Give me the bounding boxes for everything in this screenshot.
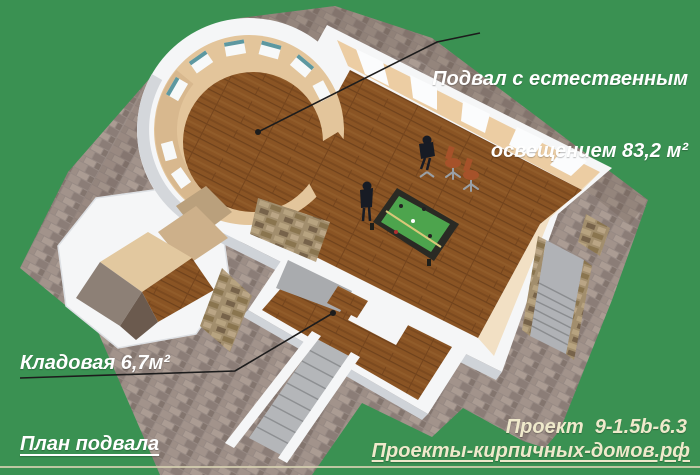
bottom-divider: [0, 466, 700, 468]
storage-area-label: Кладовая 6,7м²: [20, 352, 170, 375]
basement-area-label: Подвал с естественным освещением 83,2 м²: [432, 19, 688, 211]
basement-area-label-line2: освещением 83,2 м²: [432, 139, 688, 163]
project-code-label: Проект 9-1.5b-6.3: [506, 416, 687, 439]
basement-area-label-line1: Подвал с естественным: [432, 67, 688, 91]
website-label: Проекты-кирпичных-домов.рф: [372, 440, 690, 463]
basement-plan-render: Подвал с естественным освещением 83,2 м²…: [0, 0, 700, 475]
plan-title: План подвала: [20, 433, 159, 456]
